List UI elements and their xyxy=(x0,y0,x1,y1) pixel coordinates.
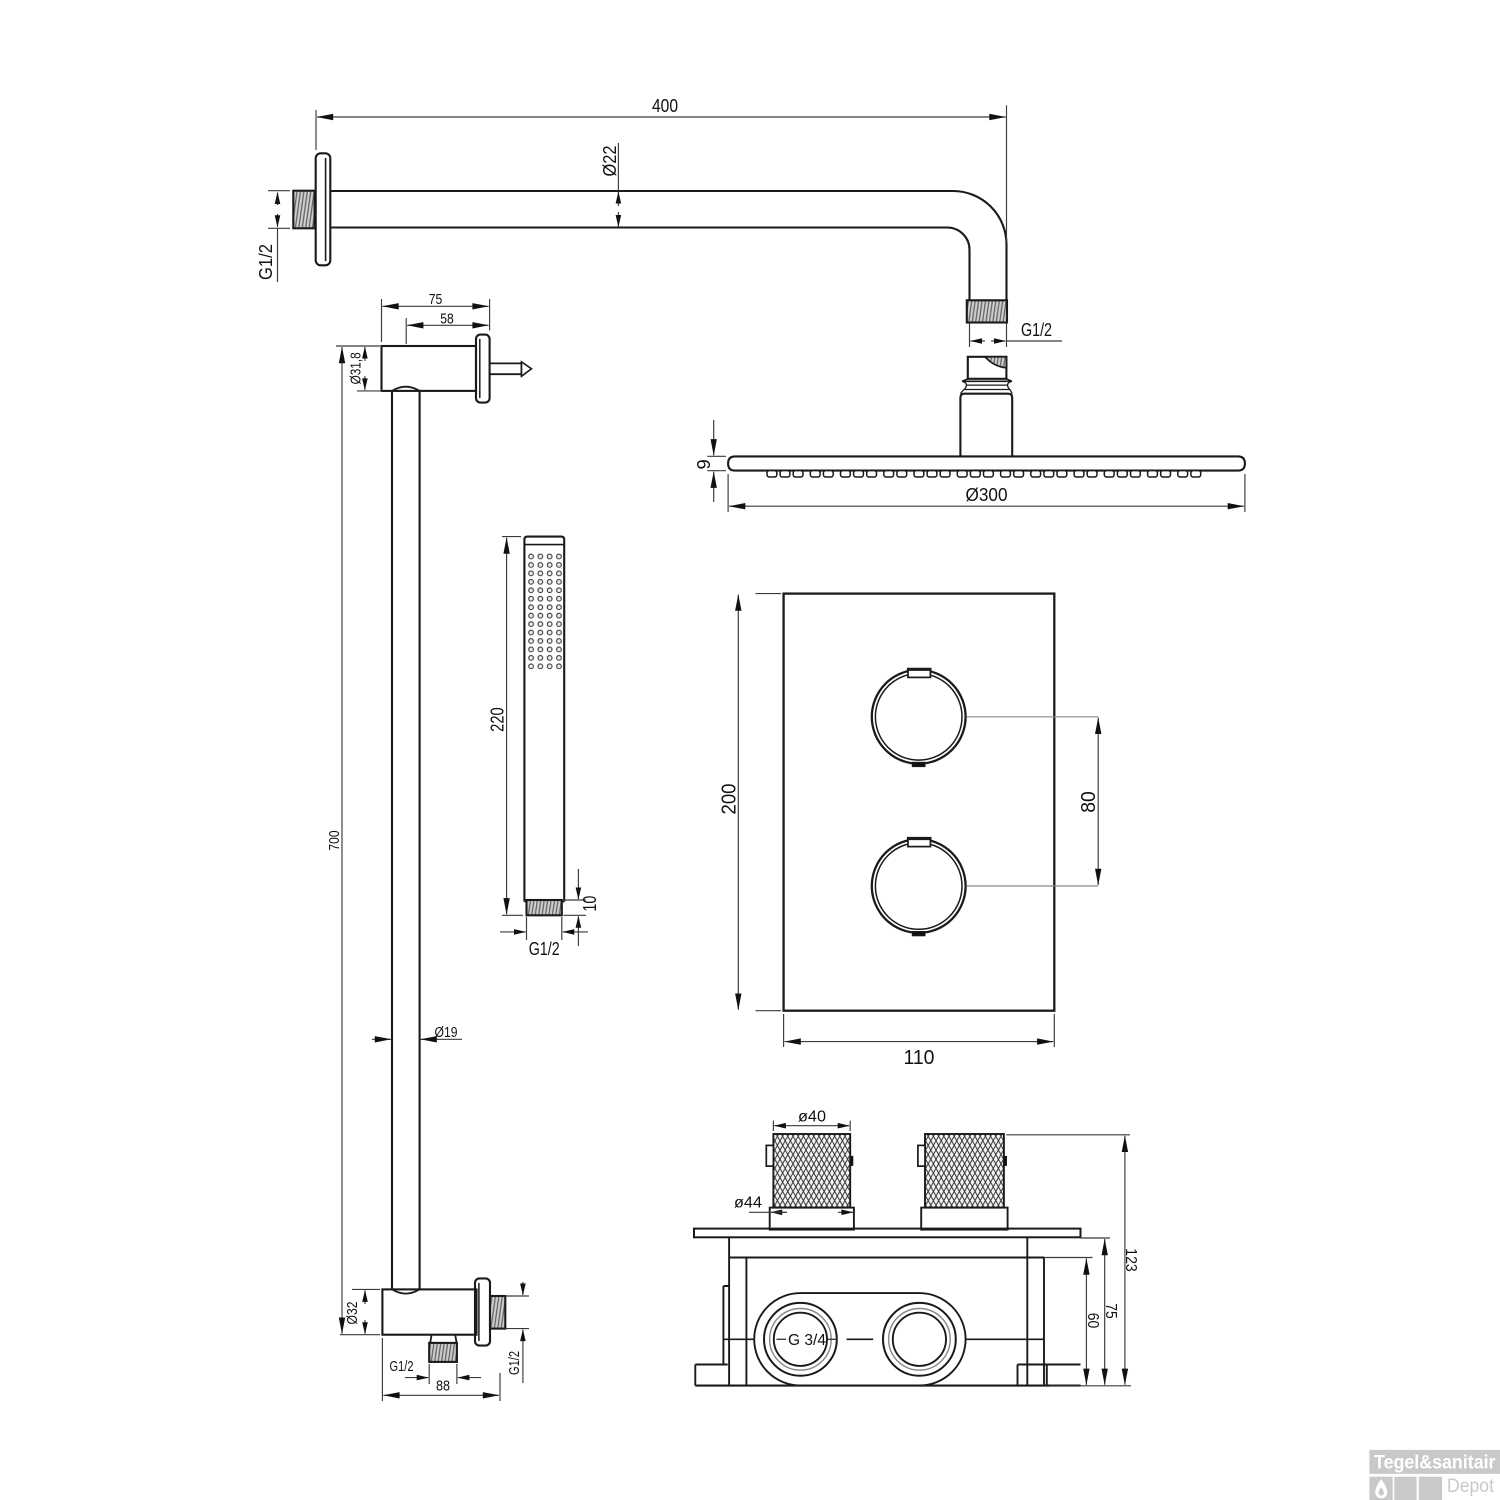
svg-text:Ø31,8: Ø31,8 xyxy=(349,352,365,384)
svg-text:58: 58 xyxy=(440,312,454,328)
svg-text:75: 75 xyxy=(1102,1303,1119,1319)
svg-text:220: 220 xyxy=(487,707,508,732)
svg-text:Ø19: Ø19 xyxy=(435,1025,458,1041)
svg-text:G1/2: G1/2 xyxy=(390,1359,414,1375)
svg-text:75: 75 xyxy=(429,292,443,308)
svg-text:G1/2: G1/2 xyxy=(255,244,276,280)
svg-text:G1/2: G1/2 xyxy=(529,938,560,959)
svg-text:80: 80 xyxy=(1078,791,1100,813)
svg-text:10: 10 xyxy=(579,896,600,912)
svg-text:Ø32: Ø32 xyxy=(345,1302,361,1325)
svg-text:G1/2: G1/2 xyxy=(507,1351,523,1375)
svg-text:G 3/4: G 3/4 xyxy=(788,1332,826,1349)
svg-text:60: 60 xyxy=(1084,1313,1101,1329)
svg-text:200: 200 xyxy=(719,784,741,815)
svg-text:Tegel&sanitair: Tegel&sanitair xyxy=(1374,1452,1496,1474)
svg-text:Ø22: Ø22 xyxy=(599,146,620,177)
svg-text:ø44: ø44 xyxy=(734,1195,762,1212)
svg-text:ø40: ø40 xyxy=(798,1109,826,1126)
svg-text:88: 88 xyxy=(436,1379,450,1395)
svg-text:123: 123 xyxy=(1122,1248,1139,1272)
svg-text:400: 400 xyxy=(652,95,678,116)
svg-text:Ø300: Ø300 xyxy=(966,484,1008,505)
svg-text:G1/2: G1/2 xyxy=(1021,319,1052,340)
svg-text:700: 700 xyxy=(327,831,343,851)
svg-text:110: 110 xyxy=(904,1047,935,1069)
svg-text:9: 9 xyxy=(693,459,714,469)
svg-text:Depot: Depot xyxy=(1447,1476,1495,1497)
